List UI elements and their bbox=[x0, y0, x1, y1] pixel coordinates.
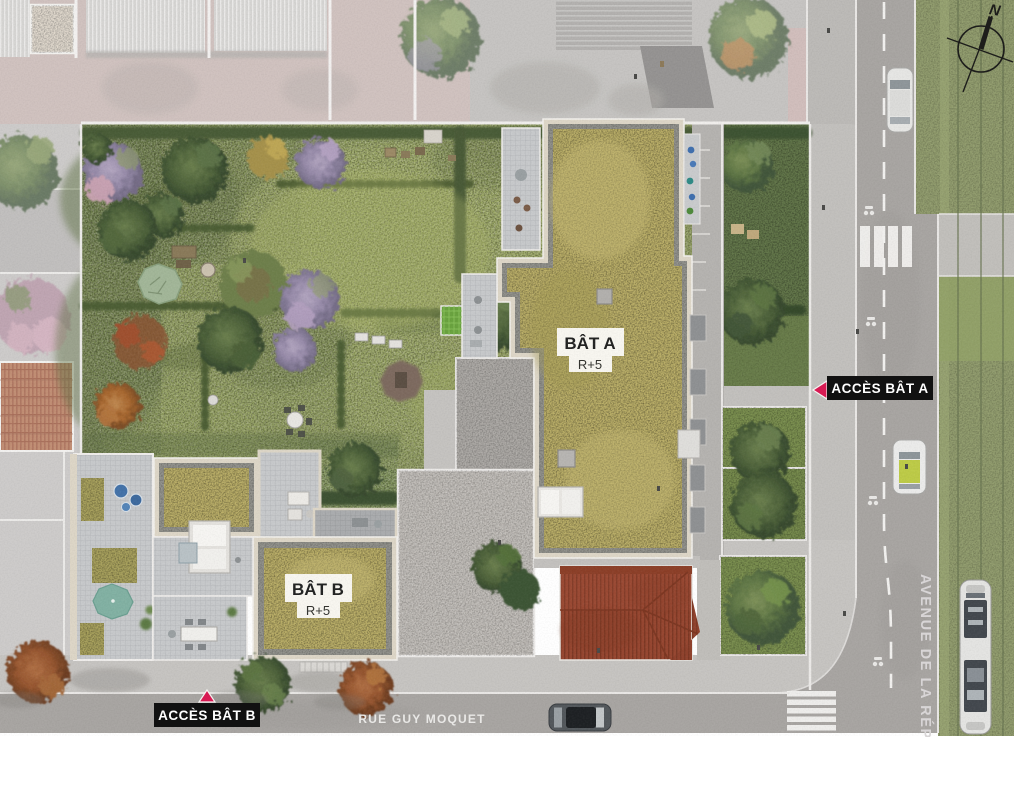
svg-text:ACCÈS BÂT B: ACCÈS BÂT B bbox=[158, 708, 256, 723]
svg-text:ACCÈS BÂT A: ACCÈS BÂT A bbox=[831, 381, 928, 396]
svg-text:RUE GUY MOQUET: RUE GUY MOQUET bbox=[358, 712, 485, 726]
